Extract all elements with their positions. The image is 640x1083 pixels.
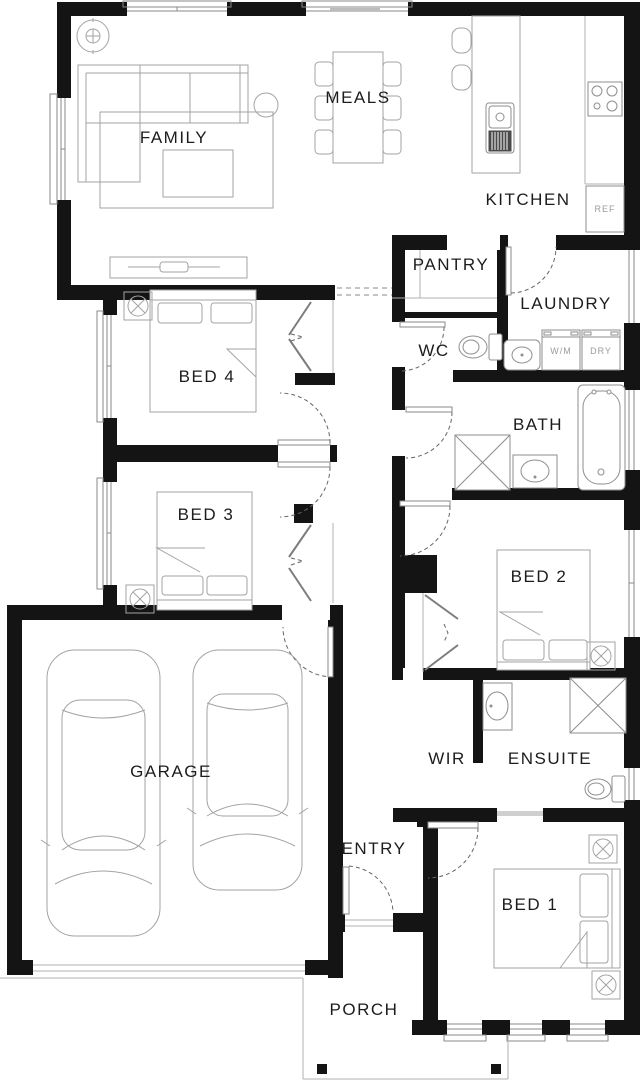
porch-post <box>491 1064 501 1074</box>
bed-icon <box>494 869 620 968</box>
window <box>302 1 412 11</box>
floor-plan-page: FAMILY MEALS KITCHEN PANTRY LAUNDRY WC B… <box>0 0 640 1083</box>
window <box>444 1024 486 1041</box>
room-label-kitchen: KITCHEN <box>485 190 570 209</box>
room-label-laundry: LAUNDRY <box>520 294 611 313</box>
laundry-trough <box>504 340 540 370</box>
room-label-ensuite: ENSUITE <box>508 749 592 768</box>
door-swing <box>283 627 333 677</box>
door-swing <box>400 501 450 556</box>
toilet-icon <box>585 776 625 802</box>
door-swing <box>406 407 452 458</box>
side-table <box>254 93 278 117</box>
fridge-label: REF <box>595 204 616 214</box>
ceiling-light-icon <box>589 835 617 863</box>
ceiling-fan-icon <box>77 18 109 54</box>
ceiling-light-icon <box>587 642 615 670</box>
stool <box>452 28 471 53</box>
window <box>567 1024 608 1041</box>
stool <box>452 65 471 90</box>
window <box>50 94 65 204</box>
dining-table <box>315 52 401 163</box>
wardrobe <box>289 523 333 603</box>
room-label-bed1: BED 1 <box>502 895 559 914</box>
room-label-bed4: BED 4 <box>179 367 236 386</box>
window <box>507 1024 545 1041</box>
coffee-table <box>163 150 233 197</box>
room-label-entry: ENTRY <box>342 839 407 858</box>
room-label-bed2: BED 2 <box>511 567 568 586</box>
door-swing <box>278 393 330 445</box>
sink-icon <box>486 103 514 153</box>
threshold <box>497 811 543 816</box>
front-door-swing <box>343 866 393 914</box>
window <box>629 390 634 470</box>
room-label-wc: WC <box>418 341 449 360</box>
window <box>629 250 634 323</box>
room-label-bed3: BED 3 <box>178 505 235 524</box>
window <box>629 530 634 637</box>
door-swing <box>506 247 556 295</box>
basin-icon <box>483 683 512 730</box>
window <box>97 478 111 589</box>
wardrobe <box>289 300 333 373</box>
car-icon <box>41 650 166 936</box>
room-label-bath: BATH <box>513 415 563 434</box>
cooktop-icon <box>588 82 622 116</box>
room-label-wir: WIR <box>428 749 466 768</box>
bathtub-icon <box>578 385 625 490</box>
room-label-pantry: PANTRY <box>413 255 489 274</box>
tv-unit <box>110 257 247 278</box>
washer-label: W/M <box>550 346 572 356</box>
bed-icon <box>150 290 256 412</box>
room-label-meals: MEALS <box>325 88 390 107</box>
shower-icon <box>570 678 626 733</box>
wardrobe <box>423 593 458 672</box>
window <box>97 311 111 422</box>
room-label-porch: PORCH <box>330 1000 399 1019</box>
window <box>123 1 231 11</box>
dryer-label: DRY <box>590 346 612 356</box>
ceiling-light-icon <box>592 971 620 999</box>
room-label-family: FAMILY <box>140 128 208 147</box>
shower-icon <box>455 435 510 490</box>
room-label-garage: GARAGE <box>130 762 212 781</box>
basin-icon <box>513 455 557 488</box>
porch-post <box>317 1064 327 1074</box>
site-lines <box>0 811 543 1079</box>
window <box>629 768 634 800</box>
toilet-icon <box>459 334 502 360</box>
floor-plan: FAMILY MEALS KITCHEN PANTRY LAUNDRY WC B… <box>0 0 640 1083</box>
